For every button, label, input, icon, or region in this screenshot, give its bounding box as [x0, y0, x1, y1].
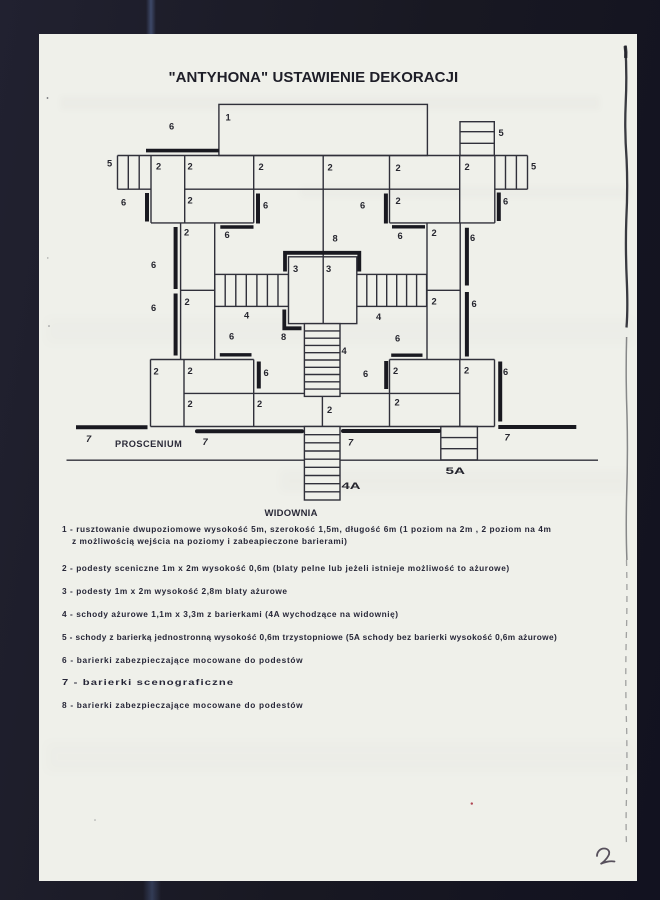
svg-text:7: 7 [86, 434, 92, 444]
svg-text:7: 7 [203, 437, 209, 447]
svg-text:2: 2 [464, 366, 469, 376]
svg-text:6: 6 [360, 201, 365, 211]
svg-text:6: 6 [151, 260, 156, 270]
svg-text:6: 6 [264, 368, 269, 378]
svg-text:4A: 4A [342, 481, 361, 491]
svg-text:6: 6 [151, 303, 156, 313]
svg-text:2: 2 [396, 196, 401, 206]
svg-text:6: 6 [121, 198, 126, 208]
svg-text:6: 6 [263, 201, 268, 211]
svg-text:7: 7 [348, 438, 354, 448]
svg-text:6: 6 [229, 332, 234, 342]
svg-text:2: 2 [257, 399, 262, 409]
svg-text:6: 6 [169, 122, 174, 132]
svg-text:8: 8 [281, 332, 286, 342]
svg-text:4: 4 [376, 312, 382, 322]
svg-text:6: 6 [472, 299, 477, 309]
svg-text:2: 2 [465, 162, 470, 172]
svg-text:6: 6 [503, 367, 508, 377]
svg-text:2: 2 [395, 398, 400, 408]
svg-text:2: 2 [328, 163, 333, 173]
svg-text:3: 3 [326, 264, 331, 274]
svg-text:6: 6 [398, 231, 403, 241]
svg-text:5A: 5A [446, 466, 466, 476]
svg-text:5: 5 [499, 128, 504, 138]
svg-text:2: 2 [188, 366, 193, 376]
svg-text:6: 6 [395, 334, 400, 344]
svg-text:2: 2 [188, 162, 193, 172]
svg-text:2: 2 [432, 228, 437, 238]
svg-text:2: 2 [188, 196, 193, 206]
svg-text:2: 2 [432, 297, 437, 307]
svg-text:1: 1 [226, 112, 231, 122]
svg-text:4: 4 [342, 346, 348, 356]
svg-text:2: 2 [185, 297, 190, 307]
svg-text:2: 2 [259, 162, 264, 172]
svg-text:2: 2 [393, 366, 398, 376]
svg-text:6: 6 [225, 230, 230, 240]
svg-text:3: 3 [293, 264, 298, 274]
svg-text:6: 6 [470, 233, 475, 243]
svg-text:5: 5 [531, 162, 536, 172]
svg-text:2: 2 [188, 399, 193, 409]
svg-text:8: 8 [333, 234, 338, 244]
svg-text:6: 6 [363, 369, 368, 379]
svg-text:7: 7 [505, 433, 511, 443]
svg-text:2: 2 [396, 163, 401, 173]
svg-text:2: 2 [154, 367, 159, 377]
svg-text:4: 4 [244, 311, 250, 321]
svg-text:5: 5 [107, 159, 112, 169]
svg-text:2: 2 [156, 161, 161, 171]
svg-text:2: 2 [327, 405, 332, 415]
svg-text:2: 2 [184, 228, 189, 238]
svg-text:6: 6 [503, 197, 508, 207]
